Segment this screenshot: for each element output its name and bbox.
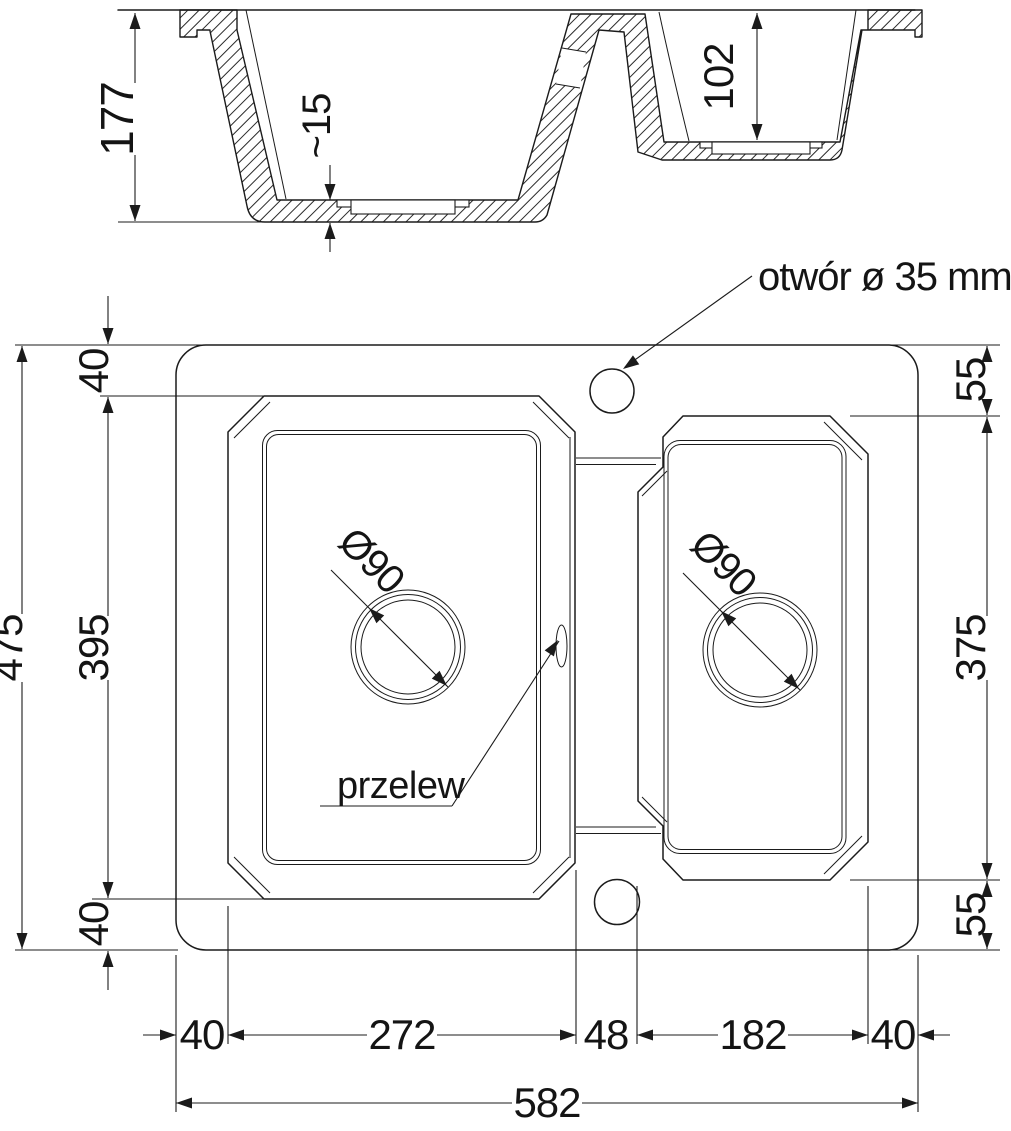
label-drain-left: Ø90 xyxy=(330,520,412,602)
faucet-hole-top xyxy=(590,369,634,413)
right-bowl-inner-rim xyxy=(664,441,846,854)
right-drain: Ø90 xyxy=(682,523,817,707)
section-view: 177 ~15 102 xyxy=(91,10,922,252)
faucet-hole-bottom xyxy=(595,880,640,925)
dim-chain-1: 272 xyxy=(368,1011,435,1058)
label-faucet-hole: otwór ø 35 mm xyxy=(758,255,1011,299)
dim-right-top: 55 xyxy=(947,358,994,403)
dim-chain-4: 40 xyxy=(871,1011,916,1058)
dim-bowl-height: 395 xyxy=(70,614,117,681)
dim-overall-width-group: 582 xyxy=(176,1079,918,1126)
dim-right-bowl-height: 375 xyxy=(947,614,994,681)
dims-bottom-chain: 40 272 48 182 40 xyxy=(143,1011,950,1058)
right-drain-plate xyxy=(712,142,810,154)
dim-chain-3: 182 xyxy=(719,1011,786,1058)
dim-depth-main: 177 xyxy=(91,82,143,156)
left-drain-plate xyxy=(351,200,455,214)
right-bowl-inner-rim-2 xyxy=(668,445,842,850)
right-bowl-outline xyxy=(638,416,868,880)
label-drain-right: Ø90 xyxy=(682,523,764,605)
dims-right: 55 375 55 xyxy=(947,346,994,949)
dim-chain-0: 40 xyxy=(180,1011,225,1058)
dim-overall-width: 582 xyxy=(513,1079,580,1126)
dims-left: 475 40 395 40 xyxy=(0,296,117,990)
plan-view: Ø90 Ø90 przelew otwór ø 35 mm xyxy=(0,255,1011,1126)
left-bowl-outline xyxy=(228,396,575,899)
section-body xyxy=(180,10,922,222)
dim-floor-thickness: ~15 xyxy=(295,94,339,159)
label-overflow: przelew xyxy=(337,765,465,807)
dim-depth-small: 102 xyxy=(695,43,742,110)
dim-overall-height: 475 xyxy=(0,614,31,681)
dim-margin-top: 40 xyxy=(70,349,117,394)
drawing-page: 177 ~15 102 xyxy=(0,0,1011,1131)
divider-contour xyxy=(659,12,689,141)
dim-margin-bottom: 40 xyxy=(70,902,117,947)
overflow-hole xyxy=(556,625,567,667)
dim-chain-2: 48 xyxy=(584,1011,629,1058)
dim-right-bottom: 55 xyxy=(947,893,994,938)
left-drain: Ø90 xyxy=(330,520,465,704)
technical-drawing: 177 ~15 102 xyxy=(0,0,1011,1131)
